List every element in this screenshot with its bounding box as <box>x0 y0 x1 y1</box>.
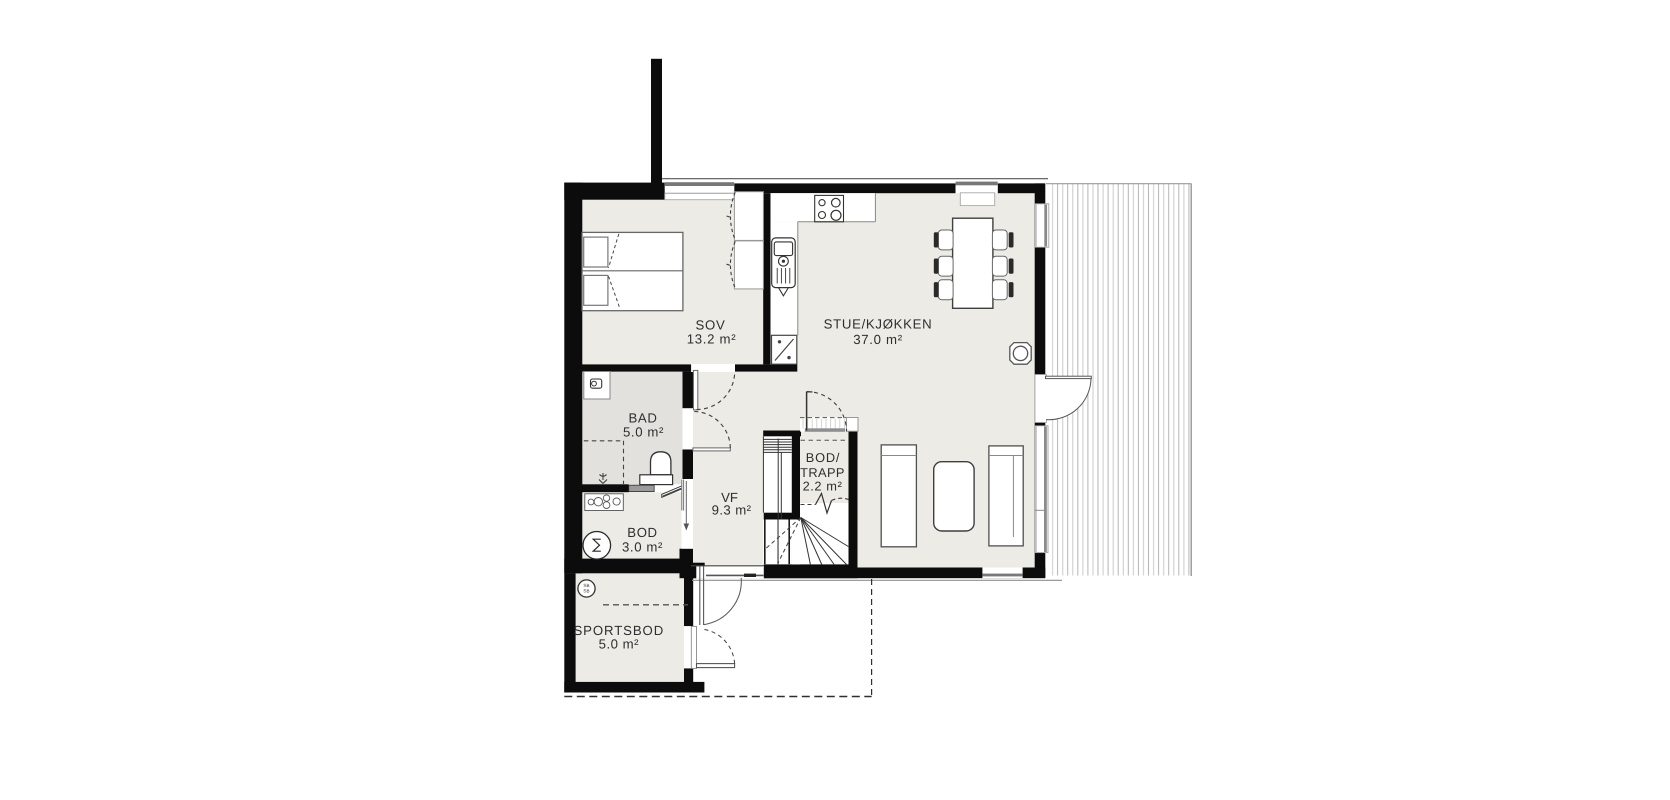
svg-text:9.3 m²: 9.3 m² <box>712 503 752 518</box>
svg-text:37.0 m²: 37.0 m² <box>853 332 903 347</box>
svg-text:SB: SB <box>583 583 589 588</box>
svg-text:BAD: BAD <box>629 411 658 426</box>
svg-text:13.2 m²: 13.2 m² <box>687 332 737 347</box>
svg-text:5.0 m²: 5.0 m² <box>623 425 664 440</box>
svg-text:3.0 m²: 3.0 m² <box>622 540 663 555</box>
svg-text:2.2 m²: 2.2 m² <box>803 479 843 494</box>
svg-text:TRAPP: TRAPP <box>800 465 845 480</box>
svg-text:BOD: BOD <box>627 525 657 540</box>
svg-text:SB: SB <box>583 589 589 594</box>
svg-text:SOV: SOV <box>696 318 726 333</box>
svg-text:BOD/: BOD/ <box>806 450 841 465</box>
svg-text:5.0 m²: 5.0 m² <box>599 637 639 652</box>
svg-text:STUE/KJØKKEN: STUE/KJØKKEN <box>824 317 933 332</box>
